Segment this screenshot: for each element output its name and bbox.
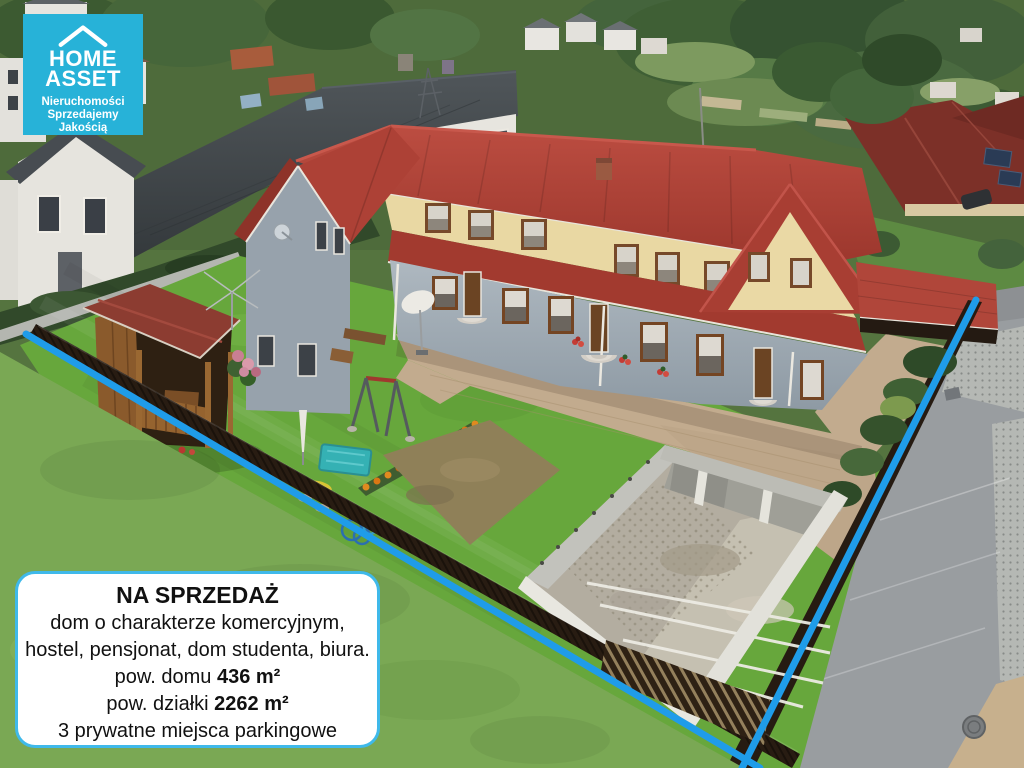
manhole-cover	[963, 716, 985, 738]
brand-name-line2: ASSET	[45, 69, 121, 89]
description-line: hostel, pensjonat, dom studenta, biura.	[18, 637, 377, 664]
parking-line: 3 prywatne miejsca parkingowe	[18, 718, 377, 745]
agency-logo: HOME ASSET Nieruchomości Sprzedajemy Jak…	[23, 14, 143, 135]
sandbox	[319, 444, 372, 476]
listing-photo: HOME ASSET Nieruchomości Sprzedajemy Jak…	[0, 0, 1024, 768]
brand-tagline: Nieruchomości Sprzedajemy Jakością	[41, 96, 124, 135]
plot-area-line: pow. działki 2262 m²	[18, 691, 377, 718]
entrance-door	[590, 304, 608, 352]
roof-icon	[47, 24, 119, 47]
description-line: dom o charakterze komercyjnym,	[18, 610, 377, 637]
house-area-value: 436 m²	[217, 666, 280, 688]
tagline-line: Sprzedajemy	[41, 109, 124, 122]
entrance-door	[464, 272, 481, 316]
house-area-line: pow. domu 436 m²	[18, 664, 377, 691]
tagline-line: Nieruchomości	[41, 96, 124, 109]
plot-area-value: 2262 m²	[214, 693, 289, 715]
info-box: NA SPRZEDAŻ dom o charakterze komercyjny…	[15, 571, 380, 748]
tagline-line: Jakością	[41, 122, 124, 135]
main-house	[234, 126, 884, 414]
entrance-door	[754, 348, 772, 398]
sale-title: NA SPRZEDAŻ	[18, 581, 377, 610]
